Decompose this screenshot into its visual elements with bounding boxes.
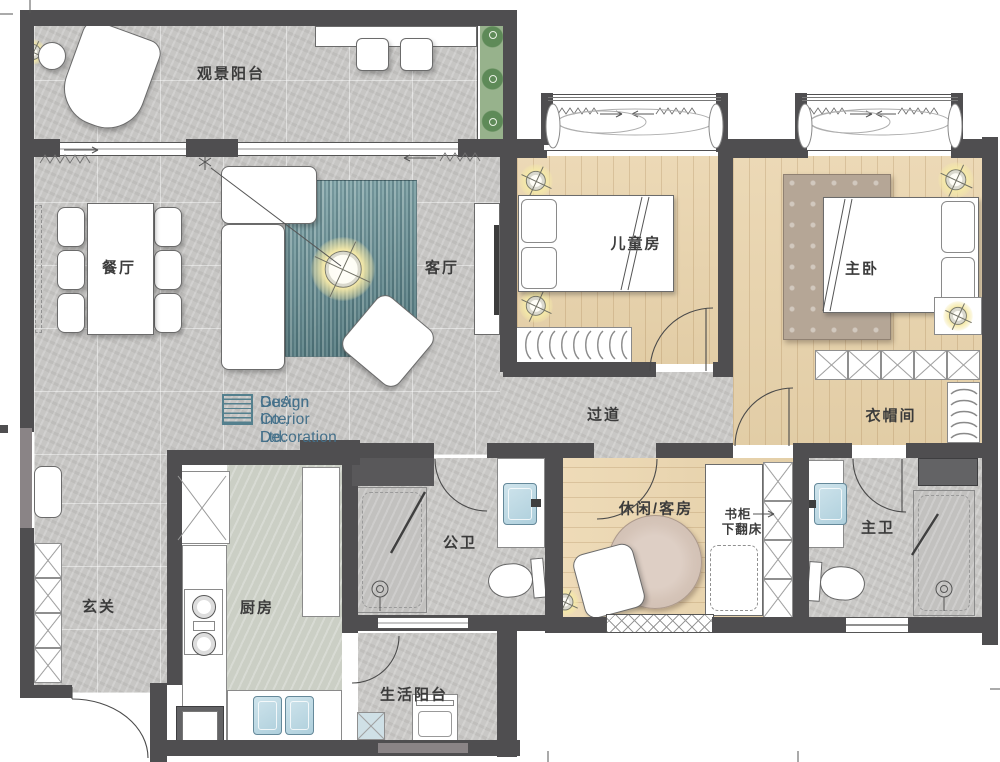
room-label-viewing-balcony: 观景阳台 xyxy=(197,63,265,84)
window-glazing xyxy=(802,97,958,101)
wall-segment xyxy=(795,93,807,152)
wall-segment xyxy=(500,139,517,372)
wall-segment xyxy=(497,617,517,757)
dining-chair xyxy=(57,293,85,333)
fold-bed-dashed-zone xyxy=(710,545,758,611)
wall-segment xyxy=(20,685,72,698)
wall-segment xyxy=(503,362,656,377)
toilet xyxy=(807,561,867,605)
ceiling-lamp-icon xyxy=(311,237,375,301)
wall-cabinet-dashed xyxy=(35,205,42,333)
dresser-cell xyxy=(947,350,980,380)
shower-area xyxy=(913,490,975,616)
balcony-counter xyxy=(315,26,477,47)
bulkhead-beam xyxy=(352,458,434,486)
dining-chair xyxy=(154,250,182,290)
room-label-dining: 餐厅 xyxy=(102,257,136,278)
wall-segment xyxy=(656,443,733,458)
room-label-kitchen: 厨房 xyxy=(240,597,274,618)
room-label-service-balcony: 生活阳台 xyxy=(380,684,448,705)
wall-segment xyxy=(951,139,983,158)
ceiling-lamp-icon xyxy=(519,164,553,198)
toilet xyxy=(486,558,546,603)
wall-segment xyxy=(982,137,998,645)
sofa-chaise xyxy=(221,166,317,224)
wall-segment xyxy=(908,617,983,633)
sofa xyxy=(221,224,285,370)
room-label-leisure-guest: 休闲/客房 xyxy=(619,498,693,519)
wall-segment xyxy=(20,428,32,532)
wall-segment xyxy=(503,10,517,156)
wall-segment xyxy=(713,362,733,377)
foyer-bench xyxy=(34,466,62,518)
dresser-cell xyxy=(914,350,947,380)
dresser-cell xyxy=(815,350,848,380)
shoe-cabinet-cell xyxy=(34,578,62,613)
kitchen-sink xyxy=(285,696,314,735)
room-label-kids-room: 儿童房 xyxy=(610,233,661,254)
dining-chair xyxy=(154,207,182,247)
shower-area xyxy=(357,487,427,613)
pillow xyxy=(521,199,557,243)
dining-chair xyxy=(57,250,85,290)
wall-segment xyxy=(712,617,810,633)
wall-segment xyxy=(20,147,34,432)
room-label-hallway: 过道 xyxy=(587,404,621,425)
sliding-window xyxy=(34,142,500,156)
door-swing-entry xyxy=(72,699,148,758)
wall-segment xyxy=(718,139,733,377)
bookcase-cell xyxy=(763,462,793,501)
kids-wardrobe xyxy=(515,327,632,363)
wall-segment xyxy=(378,743,468,753)
balcony-side-table xyxy=(38,42,66,70)
wall-segment xyxy=(545,617,608,633)
wall-segment xyxy=(167,450,182,685)
wall-segment xyxy=(487,443,546,458)
wall-segment xyxy=(20,528,34,688)
cloakroom-hanging-rail xyxy=(947,382,980,443)
logo-line2: Design Co., Ltd. xyxy=(260,394,309,446)
company-logo: GuAnn Interior Decoration Design Co., Lt… xyxy=(222,394,260,425)
tv-icon xyxy=(494,225,499,315)
bay-window xyxy=(543,94,726,151)
wall-segment xyxy=(164,740,354,756)
dining-chair xyxy=(154,293,182,333)
floor-drain-icon xyxy=(357,712,385,740)
bath-window xyxy=(378,617,468,629)
shoe-cabinet-cell xyxy=(34,543,62,578)
wall-segment xyxy=(810,617,848,633)
dining-chair xyxy=(57,207,85,247)
ceiling-lamp-icon xyxy=(938,162,974,198)
room-label-foyer: 玄关 xyxy=(82,596,116,617)
shoe-cabinet-cell xyxy=(34,613,62,648)
tall-cabinet xyxy=(302,467,340,617)
logo-wave-icon xyxy=(222,394,253,425)
shoe-cabinet-cell xyxy=(34,648,62,683)
guest-room-window xyxy=(606,614,714,633)
pillow xyxy=(521,247,557,289)
kitchen-sink xyxy=(253,696,282,735)
bookcase-cell xyxy=(763,579,793,618)
dresser-cell xyxy=(881,350,914,380)
window-glazing xyxy=(548,97,721,101)
faucet-icon xyxy=(531,499,541,507)
balcony-stool xyxy=(356,38,389,71)
wall-segment xyxy=(793,455,809,620)
wall-segment xyxy=(186,139,238,157)
wall-segment xyxy=(20,10,517,26)
floor-plan: 观景阳台 餐厅 客厅 儿童房 主卧 过道 衣帽间 公卫 休闲/客房 主卫 玄关 … xyxy=(0,0,1000,762)
room-label-master-bedroom: 主卧 xyxy=(845,258,879,279)
bath-cabinet xyxy=(918,458,978,486)
sink-basin xyxy=(814,483,847,525)
gas-stove xyxy=(184,589,223,655)
bookcase-cell xyxy=(763,501,793,540)
wall-segment xyxy=(20,10,34,156)
room-label-master-bathroom: 主卫 xyxy=(861,517,895,538)
wall-segment xyxy=(906,443,983,458)
wall-segment xyxy=(563,443,594,458)
ceiling-lamp-icon xyxy=(943,301,973,331)
ceiling-lamp-icon xyxy=(519,289,553,323)
wall-segment xyxy=(34,139,60,157)
bay-window xyxy=(797,94,963,151)
room-label-cloakroom: 衣帽间 xyxy=(865,405,916,426)
pillow xyxy=(941,201,975,253)
annotation-fold-bed: 下翻床 xyxy=(722,519,763,538)
room-label-public-bathroom: 公卫 xyxy=(443,532,477,553)
bookcase-cell xyxy=(763,540,793,579)
fridge xyxy=(174,471,230,544)
balcony-stool xyxy=(400,38,433,71)
wall-segment xyxy=(545,443,563,633)
wall-segment xyxy=(458,139,503,157)
frame-tick xyxy=(0,425,8,433)
dresser-cell xyxy=(848,350,881,380)
room-label-living: 客厅 xyxy=(425,257,459,278)
bath-window xyxy=(846,617,911,633)
